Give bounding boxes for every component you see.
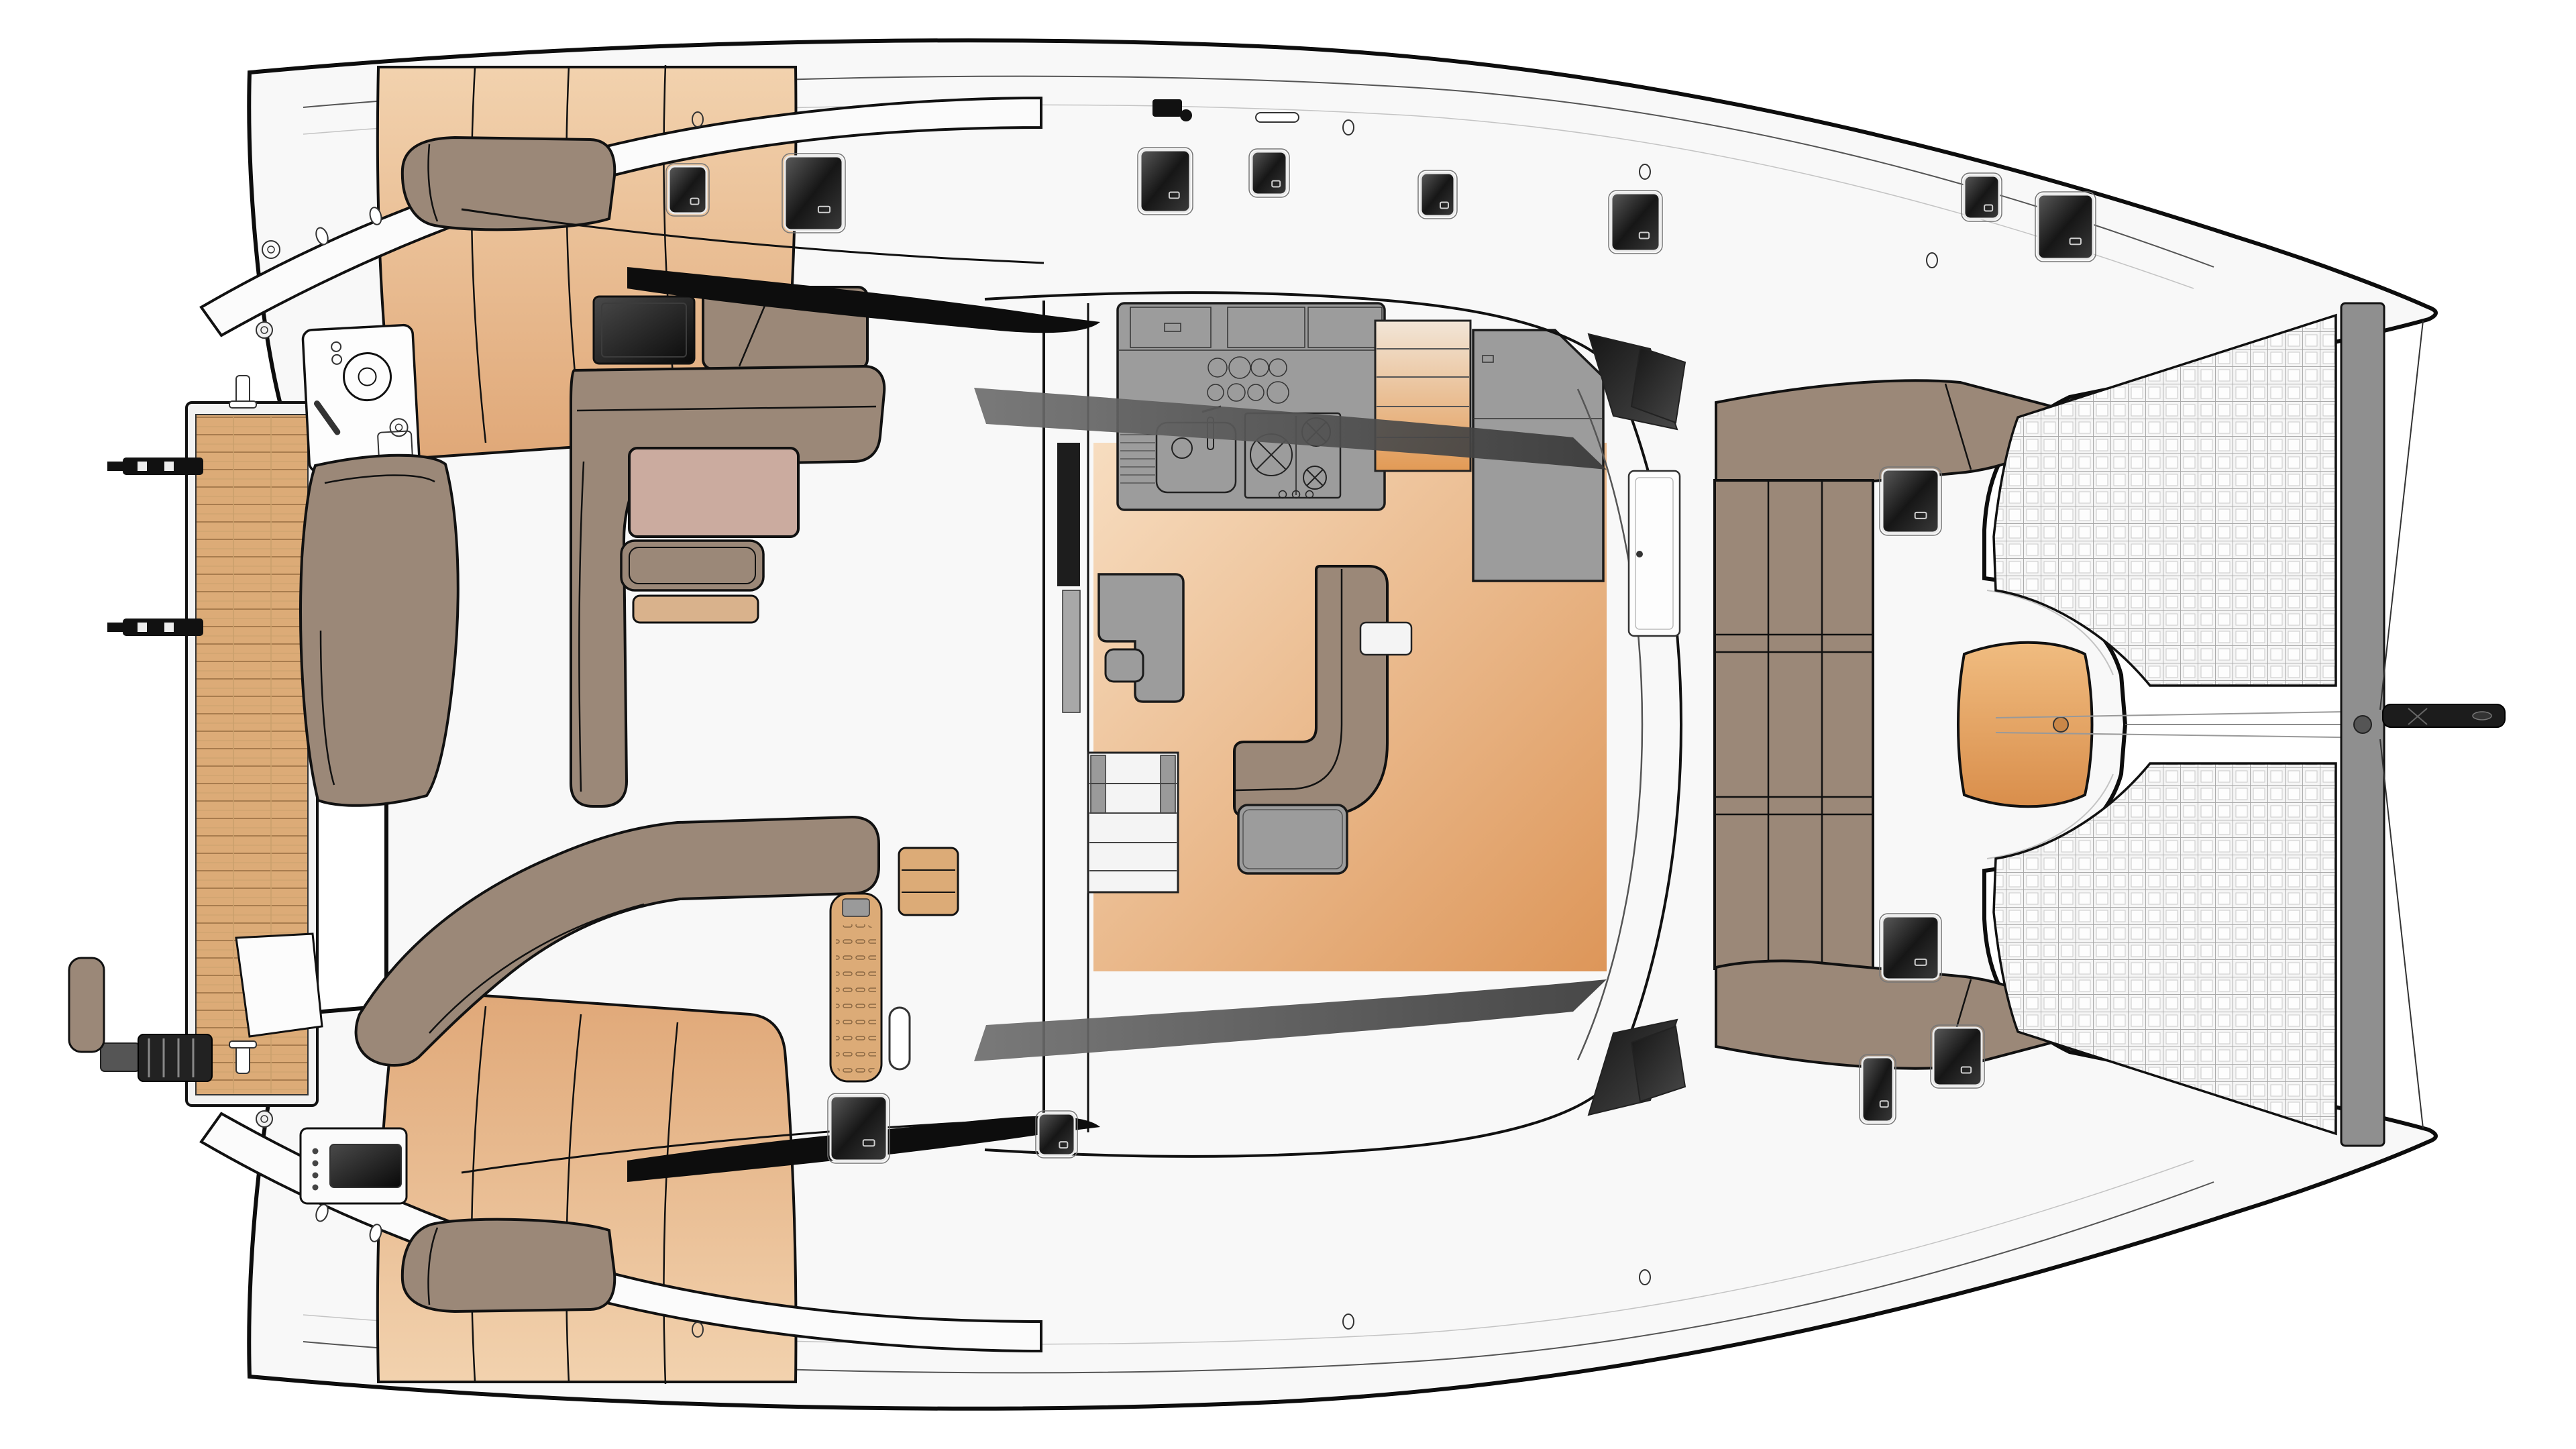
helm-bench-seat — [301, 455, 458, 806]
catamaran-deck-plan-drawing — [0, 0, 2576, 1449]
deck-filler-cap — [256, 322, 272, 338]
door-handle — [1636, 551, 1643, 557]
grill-screen — [330, 1144, 401, 1187]
teak-walkway — [830, 894, 881, 1081]
outboard-bracket — [101, 1034, 212, 1081]
forward-table-filler — [2053, 717, 2068, 732]
cockpit-footrest — [633, 596, 758, 623]
bowsprit-end-fitting — [2473, 712, 2491, 720]
deck-hatch — [2035, 192, 2096, 262]
forward-table — [1958, 643, 2092, 807]
platform-fitting-top — [229, 376, 256, 408]
aft-bench-starboard — [402, 1220, 614, 1311]
fwd-lounge-center — [1715, 480, 1873, 969]
deck-plan-page — [0, 0, 2576, 1449]
deck-hatch — [1249, 149, 1289, 197]
davit-arm-lower — [107, 619, 203, 636]
sliding-door-panel — [1063, 590, 1080, 712]
nav-stool — [1106, 649, 1143, 682]
cockpit-tv — [594, 297, 694, 364]
deck-hatch — [1036, 1111, 1077, 1158]
companionway-steps-starboard — [899, 848, 958, 915]
transom-locker-door — [236, 934, 322, 1036]
crossbeam-fitting — [2354, 716, 2371, 733]
deck-hatch — [828, 1093, 890, 1163]
cockpit-bench — [621, 541, 763, 590]
davit-arm-upper — [107, 458, 203, 475]
deck-hatch — [1418, 170, 1457, 219]
bridle-line-port — [2380, 321, 2423, 710]
cockpit-table — [629, 448, 798, 537]
deck-hatch — [1138, 148, 1193, 215]
grab-handle — [890, 1008, 910, 1069]
deck-hatch — [782, 154, 845, 233]
deck-hatch — [1931, 1025, 1984, 1088]
grill-knob — [313, 1148, 319, 1155]
deck-hatch — [1860, 1055, 1896, 1124]
settee-side-shelf — [1360, 623, 1411, 655]
deck-handle — [1256, 113, 1299, 122]
helm-station — [303, 325, 420, 472]
stairs-starboard-hull — [1088, 753, 1178, 892]
deck-hatch — [1880, 914, 1941, 982]
grill-knob — [313, 1161, 319, 1167]
walkway-notch — [843, 899, 869, 916]
deck-hatch — [666, 164, 709, 216]
deck-hatch — [1880, 467, 1941, 535]
sliding-door-opening — [1057, 443, 1080, 586]
transom-round-fitting — [262, 241, 280, 258]
grill-module — [301, 1128, 407, 1203]
forward-cockpit-door — [1629, 471, 1680, 636]
bowsprit — [2383, 704, 2505, 727]
deck-hatch — [1962, 173, 2002, 221]
deck-filler-cap — [256, 1111, 272, 1127]
deck-hatch — [1609, 191, 1662, 254]
grill-knob — [313, 1173, 319, 1179]
bridle-line-starboard — [2380, 739, 2423, 1128]
grill-knob — [313, 1185, 319, 1191]
saloon-table — [1238, 805, 1347, 873]
rail-pad — [69, 958, 104, 1052]
